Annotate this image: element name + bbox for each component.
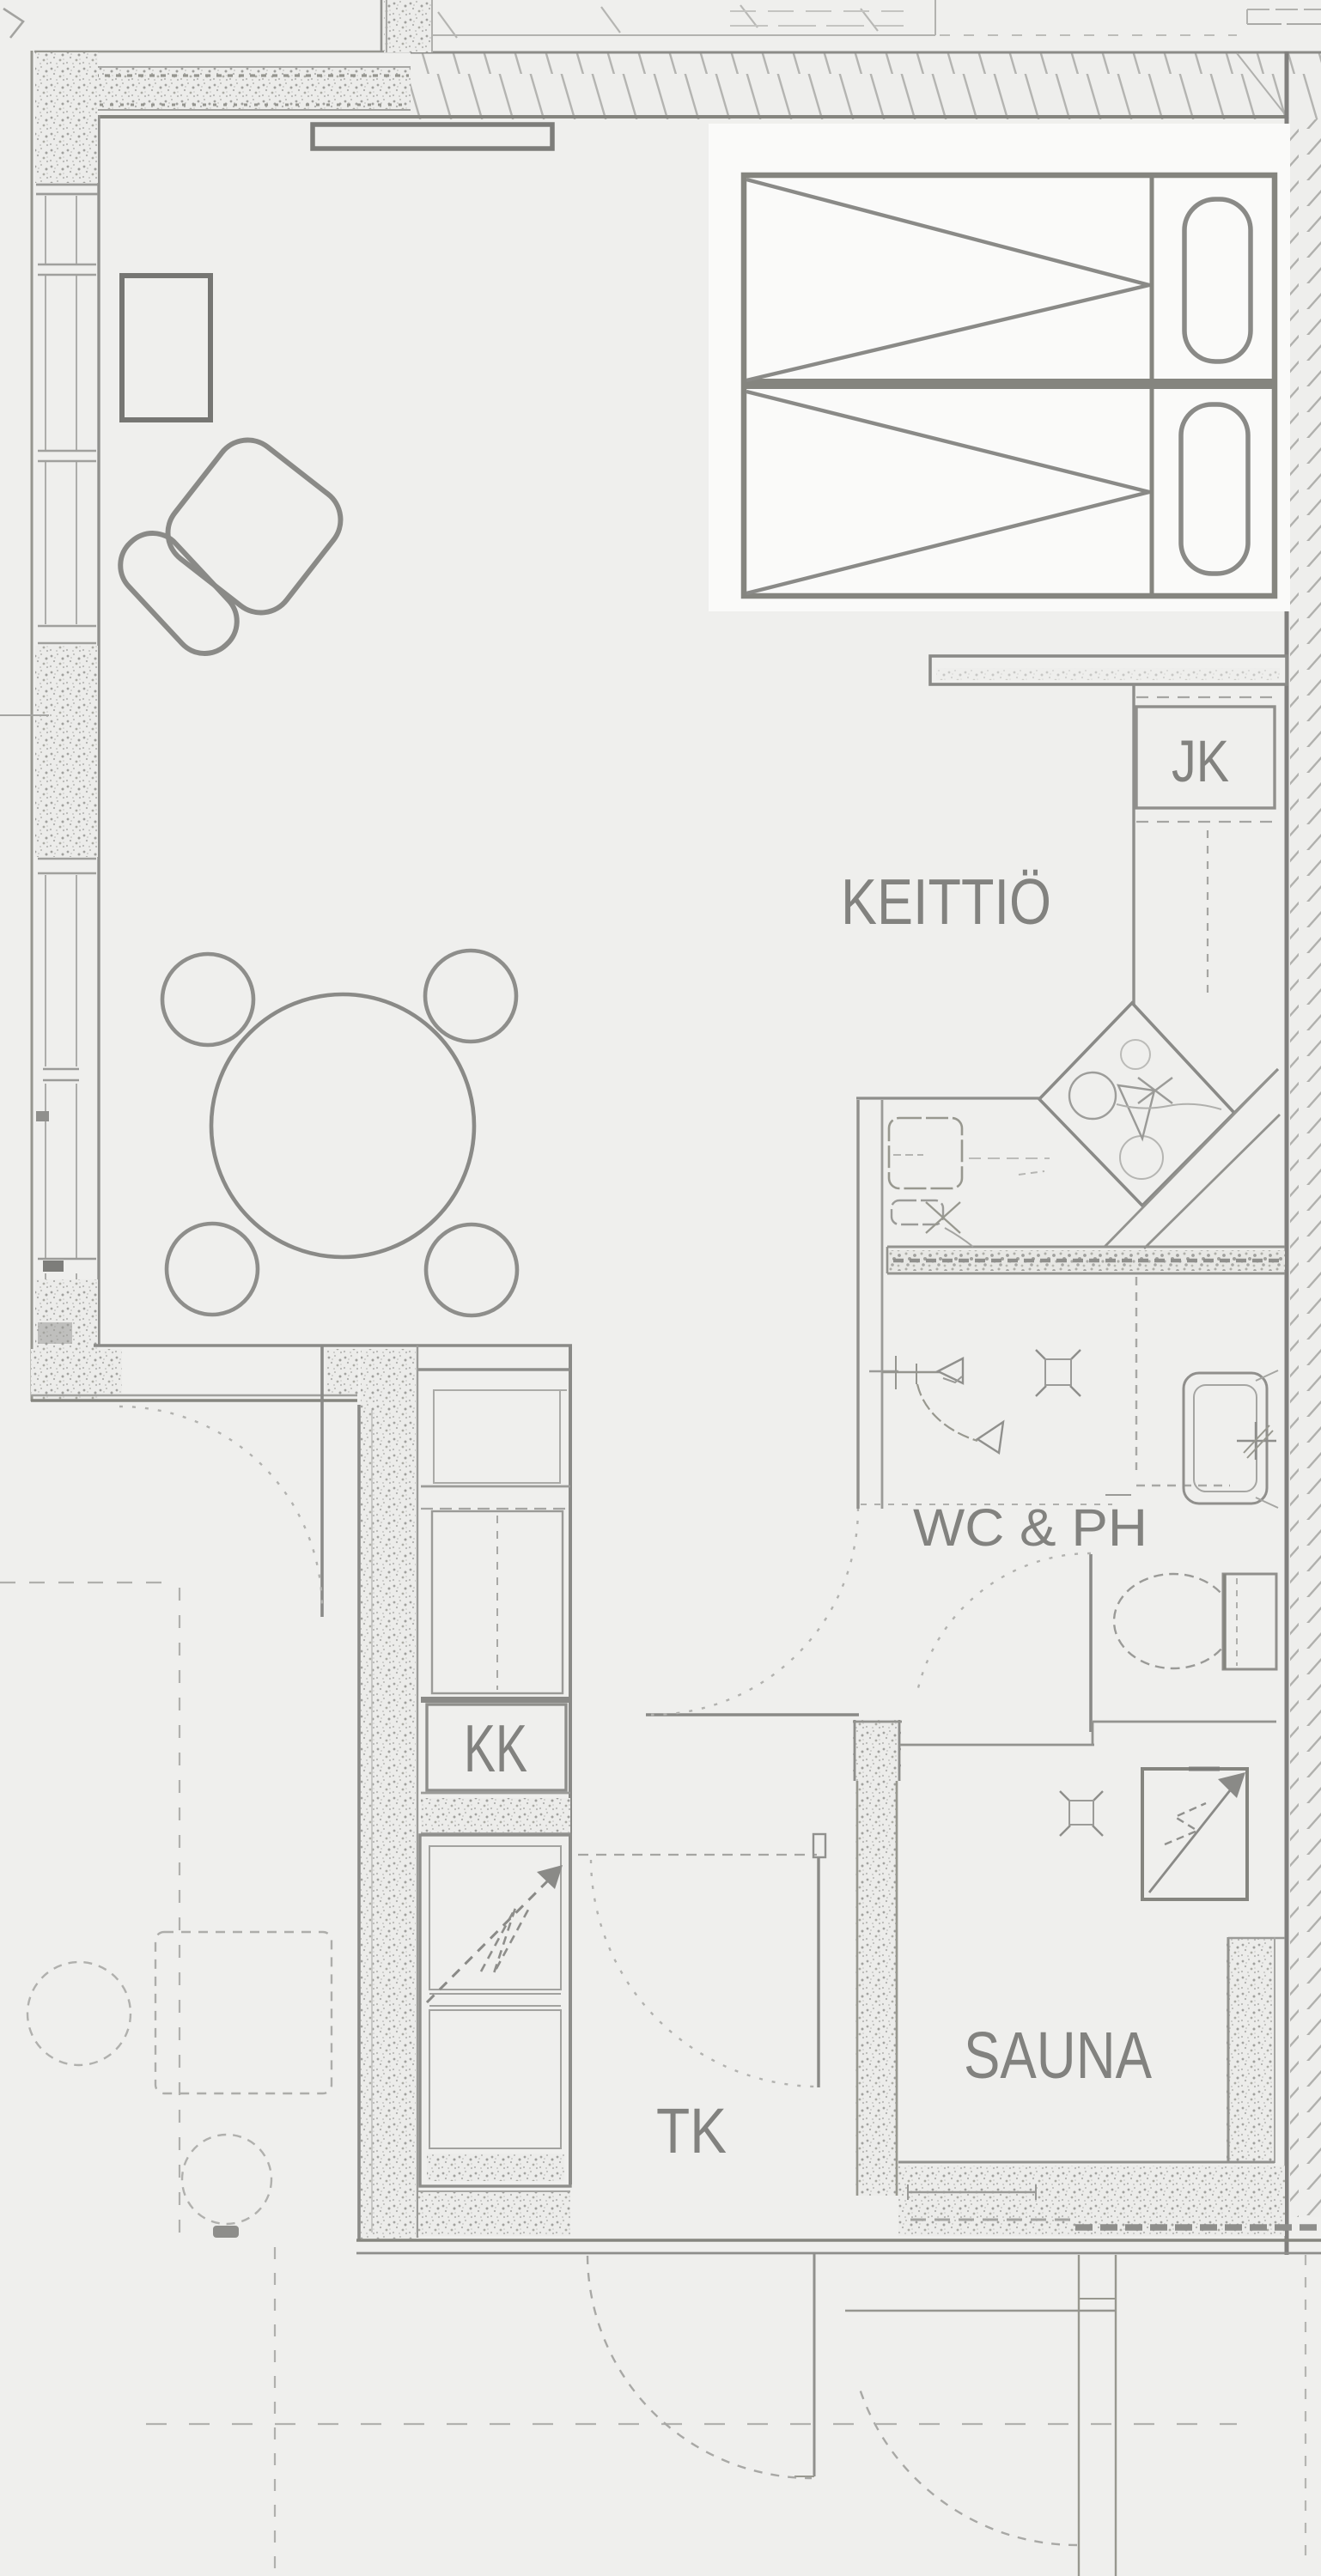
svg-text:KEITTIÖ: KEITTIÖ — [841, 866, 1051, 938]
svg-text:JK: JK — [1172, 728, 1229, 794]
svg-text:KK: KK — [464, 1710, 527, 1786]
svg-text:WC & PH: WC & PH — [913, 1498, 1148, 1557]
svg-text:SAUNA: SAUNA — [964, 2019, 1153, 2093]
svg-text:TK: TK — [656, 2095, 727, 2166]
